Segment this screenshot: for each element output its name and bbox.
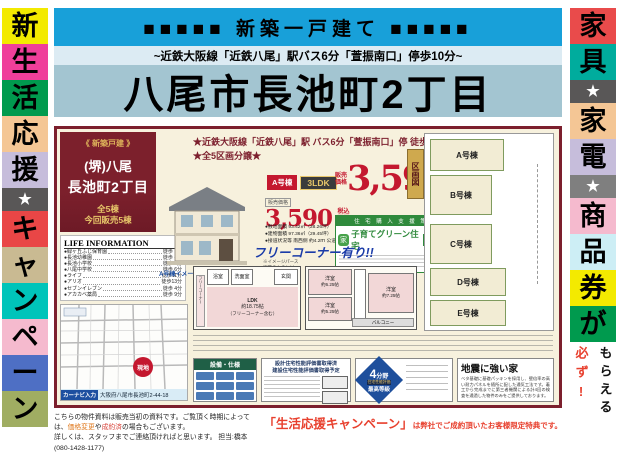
new-build-badge: 《 新築戸建 》 bbox=[60, 138, 156, 149]
campaign-character-tile: 援 bbox=[2, 152, 48, 188]
price-change-highlight: 価格変更 bbox=[68, 424, 95, 431]
prize-character-tile: が bbox=[570, 306, 616, 342]
map-streets bbox=[61, 305, 187, 389]
lot-label: E号棟 bbox=[457, 308, 478, 319]
campaign-character-tile: 応 bbox=[2, 116, 48, 152]
campaign-character-tile: ペ bbox=[2, 319, 48, 355]
lot-label: D号棟 bbox=[457, 277, 479, 288]
ldk-note: （フリーコーナー含む） bbox=[228, 311, 278, 317]
performance-evaluation-panel: 設計住宅性能評価書取得済 建設住宅性能評価書取得予定 bbox=[261, 358, 351, 402]
footer-notes: こちらの物件資料は販売当初の資料です。ご覧頂く時期によっては、価格変更や成約済の… bbox=[54, 413, 562, 454]
campaign-character-tile: 生 bbox=[2, 44, 48, 80]
walk-time: 徒歩 9分 bbox=[163, 292, 182, 298]
house-rendering bbox=[161, 181, 253, 267]
bathroom-label: 浴室 bbox=[213, 274, 223, 281]
car-navi-address: 大阪府八尾市長池町2-44-18 bbox=[100, 391, 168, 399]
moraeru-text: もらえる bbox=[596, 346, 615, 418]
headline-price-label: 販売 価格 bbox=[335, 173, 347, 187]
campaign-name: 「生活応援キャンペーン」 bbox=[263, 417, 412, 431]
bedroom-2: 洋室 約5.25帖 bbox=[308, 297, 352, 321]
performance-grade-panel: 4分野 住宅性能評価 最高等級 bbox=[355, 358, 453, 402]
unit-badge: A号棟 bbox=[267, 175, 297, 190]
unit-plan-badges: A号棟 3LDK bbox=[267, 175, 337, 190]
campaign-character-tile: 新 bbox=[2, 8, 48, 44]
prize-character-tile: 電 bbox=[570, 139, 616, 175]
road-divider bbox=[537, 164, 539, 284]
campaign-character-tile: ン bbox=[2, 283, 48, 319]
evaluation-stamps bbox=[322, 376, 348, 404]
lot-label: C号棟 bbox=[450, 239, 472, 250]
prize-character-tile: 品 bbox=[570, 234, 616, 270]
equipment-icon bbox=[196, 392, 214, 400]
equipment-icon bbox=[196, 382, 214, 390]
selling-units: 今回販売5棟 bbox=[84, 215, 131, 225]
bedroom-3-size: 約7.25帖 bbox=[382, 293, 400, 299]
kanarazu-text: 必ず! bbox=[572, 346, 591, 418]
dotted-leader bbox=[83, 279, 160, 284]
washroom-label: 洗面室 bbox=[234, 274, 249, 281]
car-navi-bar: カーナビ入力 大阪府八尾市長池町2-44-18 bbox=[61, 389, 187, 400]
ldk-room: LDK 約18.75帖 （フリーコーナー含む） bbox=[207, 287, 298, 327]
disclaimer-block: こちらの物件資料は販売当初の資料です。ご覧頂く時期によっては、価格変更や成約済の… bbox=[54, 413, 259, 454]
floor-plan-1f: フリーコーナー 浴室 洗面室 玄関 LDK 約18.75帖 （フリーコーナー含む… bbox=[193, 266, 301, 330]
unit-counts: 全5棟 今回販売5棟 bbox=[60, 204, 156, 227]
disclaimer-post: の場合もございます。 bbox=[122, 424, 189, 431]
lot: B号棟 bbox=[430, 175, 492, 215]
highest-grade-label: 最高等級 bbox=[368, 385, 390, 393]
lot-map-label: 区画図 bbox=[407, 149, 424, 199]
equipment-icon bbox=[236, 372, 254, 380]
fine-print-text bbox=[193, 335, 553, 355]
stairs bbox=[354, 269, 366, 321]
dotted-leader bbox=[103, 286, 162, 291]
equipment-icon-grid bbox=[194, 370, 256, 402]
lot-label: B号棟 bbox=[450, 190, 472, 201]
bedroom-1-size: 約6.25帖 bbox=[321, 282, 339, 288]
price-label-2: 価格 bbox=[335, 180, 347, 186]
evaluation-line2: 建設住宅性能評価書取得予定 bbox=[264, 368, 348, 375]
access-map: 現地 カーナビ入力 大阪府八尾市長池町2-44-18 bbox=[60, 304, 188, 401]
bedroom-3: 洋室 約7.25帖 bbox=[368, 273, 414, 313]
prize-character-tile: ★ bbox=[570, 80, 616, 103]
disclaimer-mid: や bbox=[95, 424, 102, 431]
evaluation-fine-print bbox=[264, 376, 320, 400]
ldk-name: LDK bbox=[247, 298, 257, 304]
property-name-line1: (堺)八尾 bbox=[60, 156, 156, 175]
equipment-panel: 設備・仕様 bbox=[193, 358, 257, 402]
prize-character-tile: 家 bbox=[570, 8, 616, 44]
grade-fields-count: 4分野 bbox=[370, 368, 389, 380]
campaign-character-tile: ★ bbox=[2, 188, 48, 211]
right-prize-banner: 家 具 ★ 家 電 ★ 商 品 券 が 必ず! もらえる bbox=[570, 8, 616, 418]
grade-bullet-lines bbox=[406, 365, 448, 395]
equipment-icon bbox=[236, 392, 254, 400]
sold-highlight: 成約済 bbox=[102, 424, 122, 431]
grade-diamond-badge: 4分野 住宅性能評価 最高等級 bbox=[355, 356, 403, 404]
campaign-character-tile: ン bbox=[2, 391, 48, 427]
bathroom: 浴室 bbox=[207, 269, 229, 285]
lot: A号棟 bbox=[430, 139, 504, 171]
earthquake-panel: 地震に強い家 ベタ基礎に基礎パッキンを採用し、壁倍率の高い耐力パネルを随所に配し… bbox=[457, 358, 554, 402]
free-corner-strip: フリーコーナー bbox=[196, 275, 205, 327]
site-marker: 現地 bbox=[133, 357, 153, 377]
dotted-leader bbox=[93, 261, 162, 266]
prize-character-tile: ★ bbox=[570, 175, 616, 198]
design-evaluation-stamp bbox=[322, 376, 348, 389]
washroom: 洗面室 bbox=[231, 269, 253, 285]
campaign-note: 「生活応援キャンペーン」は弊社でご成約頂いたお客様限定特典です。 bbox=[263, 413, 562, 433]
dotted-leader bbox=[83, 273, 161, 278]
facility-name: ●アカカベ薬局 bbox=[64, 292, 97, 298]
disclaimer-line1: ※イメージパース bbox=[263, 259, 298, 265]
dotted-leader bbox=[93, 267, 162, 272]
flyer-body: 《 新築戸建 》 (堺)八尾 長池町2丁目 全5棟 今回販売5棟 LIFE IN… bbox=[54, 126, 562, 408]
bedroom-1: 洋室 約6.25帖 bbox=[308, 269, 352, 295]
construction-evaluation-stamp bbox=[322, 391, 348, 404]
lot-map: A号棟 B号棟 C号棟 D号棟 E号棟 bbox=[424, 133, 554, 331]
balcony: バルコニー bbox=[352, 318, 414, 327]
campaign-condition: は弊社でご成約頂いたお客様限定特典です。 bbox=[413, 421, 562, 430]
evaluation-body bbox=[264, 376, 348, 404]
floor-plan-2f: 洋室 約6.25帖 洋室 約5.25帖 洋室 約7.25帖 バルコニー bbox=[305, 266, 417, 330]
campaign-character-tile: ャ bbox=[2, 247, 48, 283]
house-image bbox=[161, 181, 253, 267]
lot: D号棟 bbox=[430, 268, 506, 296]
property-name-panel: 《 新築戸建 》 (堺)八尾 長池町2丁目 全5棟 今回販売5棟 bbox=[60, 132, 156, 232]
top-banner-text: ■■■■■ 新築一戸建て ■■■■■ bbox=[143, 14, 472, 41]
equipment-icon bbox=[236, 382, 254, 390]
prize-character-list: 家 具 ★ 家 電 ★ 商 品 券 が bbox=[570, 8, 616, 342]
equipment-icon bbox=[216, 372, 234, 380]
campaign-character-tile: キ bbox=[2, 211, 48, 247]
prize-character-tile: 具 bbox=[570, 44, 616, 80]
earthquake-body: ベタ基礎に基礎パッキンを採用し、壁倍率の高い耐力パネルを随所に配した通気工法です… bbox=[461, 376, 550, 399]
life-information-row: ●アカカベ薬局 徒歩 9分 bbox=[64, 292, 182, 298]
equipment-icon bbox=[216, 392, 234, 400]
top-banner: ■■■■■ 新築一戸建て ■■■■■ bbox=[54, 8, 562, 46]
equipment-title: 設備・仕様 bbox=[194, 359, 256, 370]
catch-line-access: ★近鉄大阪線「近鉄八尾」駅 バス6分「萱振南口」停 徒歩10分★ bbox=[193, 135, 427, 149]
campaign-character-tile: ー bbox=[2, 355, 48, 391]
dotted-leader bbox=[93, 255, 162, 260]
prize-character-tile: 商 bbox=[570, 198, 616, 234]
lot-label: A号棟 bbox=[456, 150, 478, 161]
prize-character-tile: 券 bbox=[570, 270, 616, 306]
prize-character-tile: 家 bbox=[570, 103, 616, 139]
left-campaign-banner: 新 生 活 応 援 ★ キ ャ ン ペ ー ン bbox=[2, 8, 48, 427]
property-title-text: 八尾市長池町2丁目 bbox=[123, 62, 492, 120]
bedroom-2-size: 約5.25帖 bbox=[321, 309, 339, 315]
plan-type-badge: 3LDK bbox=[300, 176, 336, 190]
prize-tail: 必ず! もらえる bbox=[570, 346, 616, 418]
lot: E号棟 bbox=[430, 300, 506, 326]
campaign-character-tile: 活 bbox=[2, 80, 48, 116]
lot: C号棟 bbox=[430, 224, 492, 264]
car-navi-label: カーナビ入力 bbox=[61, 390, 98, 400]
flyer-page: ■■■■■ 新築一戸建て ■■■■■ ~近鉄大阪線「近鉄八尾」駅バス6分「萱振南… bbox=[54, 8, 562, 454]
property-name-line2: 長池町2丁目 bbox=[60, 177, 156, 197]
dotted-leader bbox=[98, 292, 162, 297]
evaluation-title: 設計住宅性能評価書取得済 建設住宅性能評価書取得予定 bbox=[264, 361, 348, 374]
price-label-1: 販売 bbox=[335, 173, 347, 179]
dotted-leader bbox=[108, 249, 162, 254]
evaluation-line1: 設計住宅性能評価書取得済 bbox=[264, 361, 348, 368]
entrance-label: 玄関 bbox=[281, 274, 291, 281]
total-units: 全5棟 bbox=[97, 204, 119, 214]
entrance: 玄関 bbox=[274, 269, 298, 285]
earthquake-title: 地震に強い家 bbox=[461, 361, 550, 375]
equipment-icon bbox=[216, 382, 234, 390]
property-title: 八尾市長池町2丁目 bbox=[54, 65, 562, 117]
equipment-icon bbox=[196, 372, 214, 380]
